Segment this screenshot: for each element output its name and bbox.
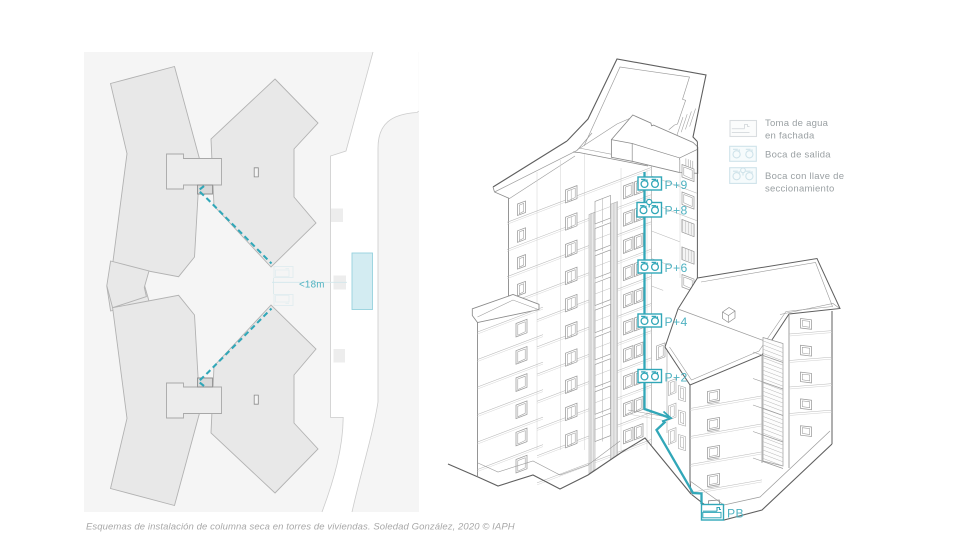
svg-text:<18m: <18m (299, 279, 325, 290)
svg-text:Toma de agua: Toma de agua (765, 118, 829, 129)
svg-text:P+6: P+6 (665, 261, 688, 275)
svg-text:Boca con llave de: Boca con llave de (765, 171, 844, 182)
svg-text:seccionamiento: seccionamiento (765, 184, 835, 195)
svg-text:P+8: P+8 (665, 204, 688, 218)
svg-text:P+4: P+4 (665, 315, 688, 329)
svg-text:PB: PB (727, 507, 744, 521)
svg-text:Esquemas de instalación de col: Esquemas de instalación de columna seca … (86, 522, 515, 533)
svg-text:P+2: P+2 (665, 371, 688, 385)
svg-text:Boca de salida: Boca de salida (765, 150, 831, 161)
svg-text:en fachada: en fachada (765, 131, 815, 142)
svg-text:P+9: P+9 (665, 178, 688, 192)
